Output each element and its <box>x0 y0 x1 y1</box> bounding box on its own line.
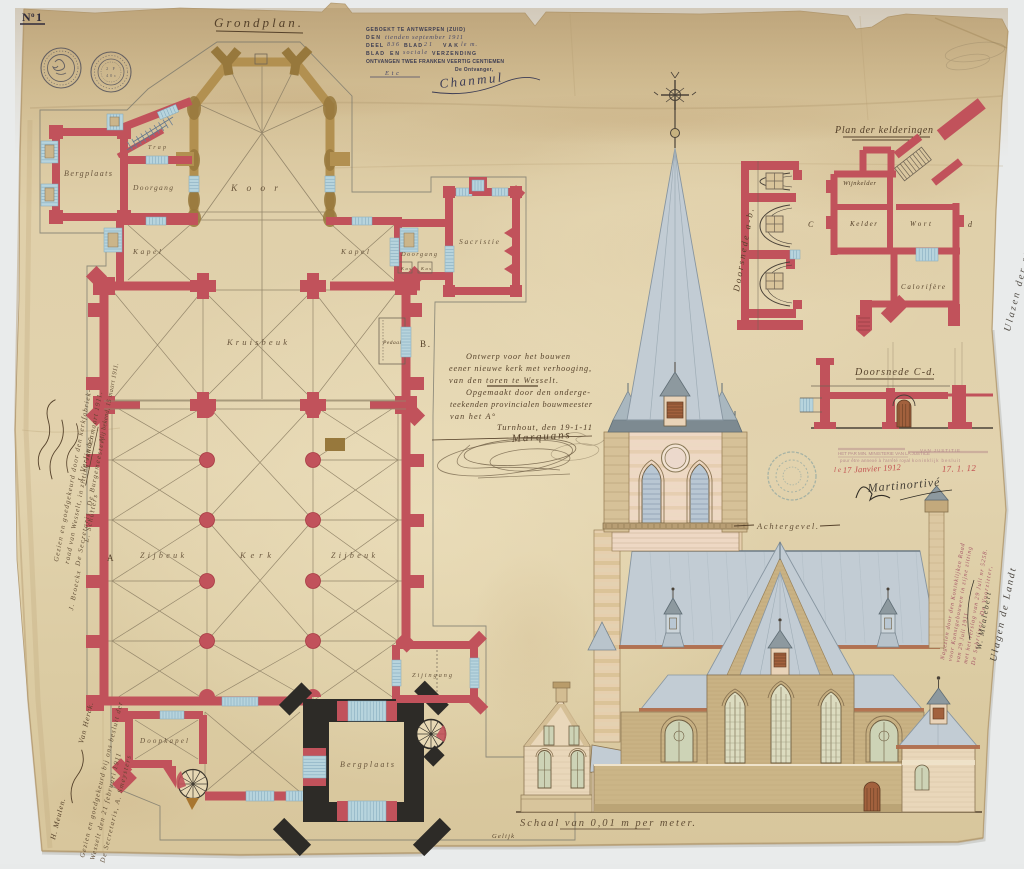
svg-text:DEEL: DEEL <box>366 43 384 49</box>
svg-text:Kas: Kas <box>420 266 431 271</box>
svg-text:Opgemaakt door den onderge-: Opgemaakt door den onderge- <box>466 388 590 397</box>
svg-text:le: le <box>834 466 841 474</box>
svg-text:DEN: DEN <box>366 35 380 41</box>
svg-text:C: C <box>808 220 814 229</box>
svg-text:Schaal van 0,01 m per meter.: Schaal van 0,01 m per meter. <box>520 818 695 829</box>
svg-text:Kas: Kas <box>400 266 411 271</box>
svg-text:teekenden provincialen bouwmee: teekenden provincialen bouwmeester <box>450 400 593 409</box>
svg-text:Bergplaats: Bergplaats <box>340 760 394 769</box>
svg-text:Wort: Wort <box>910 220 932 228</box>
svg-text:Grondplan.: Grondplan. <box>214 15 301 30</box>
svg-text:ONTVANGEN TWEE FRANKEN VEERTIG: ONTVANGEN TWEE FRANKEN VEERTIG CENTIEMEN <box>366 59 504 65</box>
svg-text:van den toren te Wesselt.: van den toren te Wesselt. <box>449 376 558 385</box>
svg-text:N: N <box>22 10 31 24</box>
svg-text:BLAD: BLAD <box>404 43 422 49</box>
svg-text:Kruisbeuk: Kruisbeuk <box>226 337 287 347</box>
svg-text:EN: EN <box>390 51 399 57</box>
svg-text:2 F: 2 F <box>106 66 115 71</box>
svg-text:Doorsnede C-d.: Doorsnede C-d. <box>854 367 935 378</box>
svg-text:tienden september 1911: tienden september 1911 <box>385 34 463 41</box>
svg-text:Sacristie: Sacristie <box>459 237 500 246</box>
svg-text:Bergplaats: Bergplaats <box>64 169 112 178</box>
svg-text:17. 1. 12: 17. 1. 12 <box>942 463 977 474</box>
svg-text:Doopkapel: Doopkapel <box>139 737 188 745</box>
svg-text:sociale: sociale <box>403 50 427 56</box>
svg-text:GEBOEKT TE ANTWERPEN (ZUID): GEBOEKT TE ANTWERPEN (ZUID) <box>366 27 465 33</box>
svg-text:40c: 40c <box>106 73 116 78</box>
svg-text:A: A <box>107 553 114 563</box>
svg-text:1: 1 <box>36 10 42 24</box>
svg-text:B.: B. <box>420 339 430 349</box>
svg-text:Gelijk: Gelijk <box>492 833 514 840</box>
svg-text:eener nieuwe kerk met verhoogi: eener nieuwe kerk met verhooging, <box>449 364 591 373</box>
svg-text:koninklijk besluit: koninklijk besluit <box>912 458 961 463</box>
svg-text:836: 836 <box>387 42 399 48</box>
svg-text:Calorifère: Calorifère <box>901 283 945 291</box>
svg-text:Pedaal: Pedaal <box>382 340 401 346</box>
svg-text:o: o <box>31 11 35 19</box>
svg-text:BLAD: BLAD <box>366 51 384 57</box>
svg-text:VERZENDING: VERZENDING <box>432 51 476 57</box>
svg-text:Etc: Etc <box>384 70 399 77</box>
svg-text:Achtergevel.: Achtergevel. <box>756 521 818 531</box>
svg-text:Plan der kelderingen: Plan der kelderingen <box>834 125 933 136</box>
svg-text:Ontwerp voor het bouwen: Ontwerp voor het bouwen <box>466 352 570 361</box>
svg-text:Trap: Trap <box>148 145 166 151</box>
svg-text:VAK: VAK <box>443 43 458 49</box>
svg-text:Wijnkelder: Wijnkelder <box>843 180 876 187</box>
